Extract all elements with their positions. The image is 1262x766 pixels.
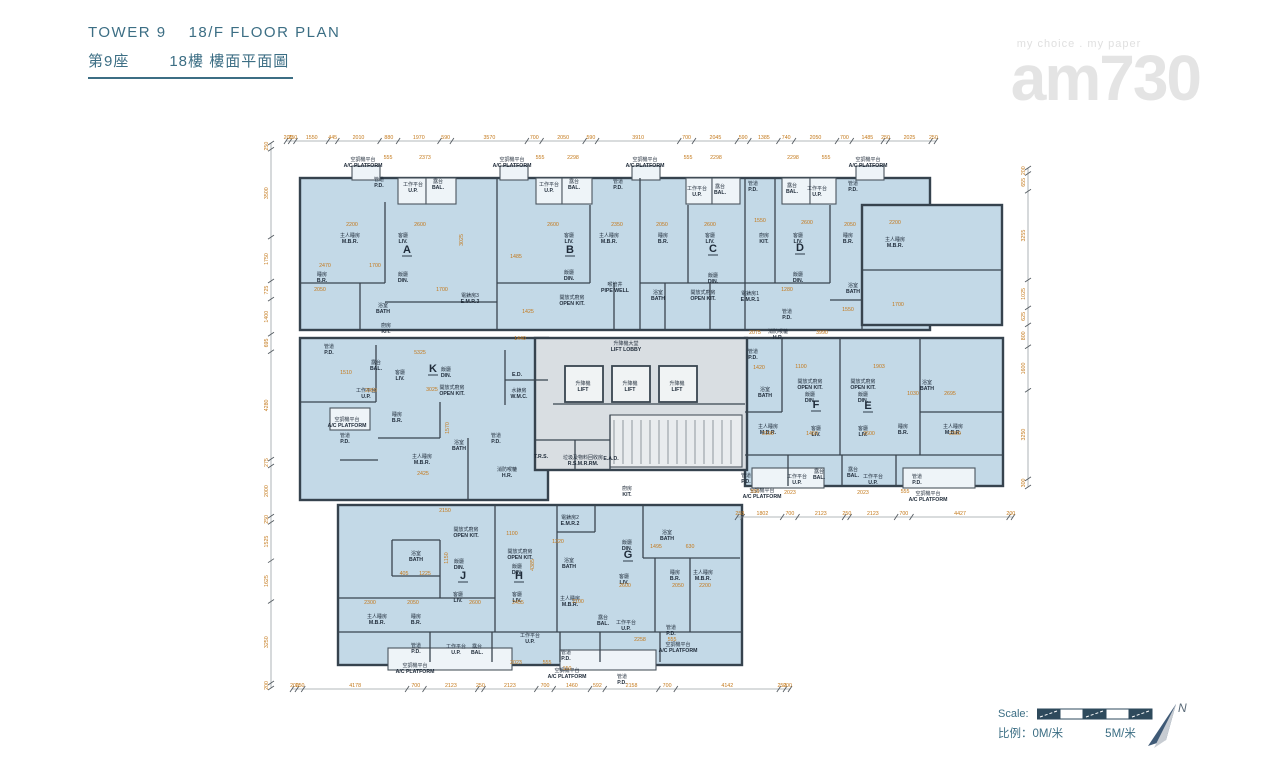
svg-text:2470: 2470 (319, 263, 331, 269)
svg-text:250: 250 (842, 511, 851, 517)
svg-text:U.P.: U.P. (361, 394, 371, 400)
svg-text:消防喉轆: 消防喉轆 (497, 466, 517, 473)
svg-text:露台: 露台 (569, 178, 579, 185)
svg-text:2050: 2050 (407, 600, 419, 606)
svg-text:DIN.: DIN. (708, 279, 719, 285)
svg-text:升降機大堂: 升降機大堂 (613, 340, 638, 347)
svg-text:浴室: 浴室 (848, 282, 858, 289)
svg-text:2075: 2075 (749, 330, 761, 336)
svg-text:T.R.S.: T.R.S. (534, 454, 549, 460)
svg-text:A/C PLATFORM: A/C PLATFORM (626, 163, 665, 169)
svg-text:1550: 1550 (754, 218, 766, 224)
svg-text:250: 250 (288, 135, 297, 141)
svg-text:主人睡房: 主人睡房 (943, 423, 963, 430)
svg-text:喉管井: 喉管井 (607, 281, 622, 288)
svg-text:4178: 4178 (349, 683, 361, 689)
svg-text:管道: 管道 (374, 176, 384, 183)
svg-text:空調機平台: 空調機平台 (334, 416, 359, 423)
svg-text:2373: 2373 (419, 155, 431, 161)
svg-text:客廳: 客廳 (705, 232, 715, 239)
svg-text:工作平台: 工作平台 (863, 473, 883, 480)
svg-text:BATH: BATH (660, 536, 674, 542)
svg-text:客廳: 客廳 (564, 232, 574, 239)
svg-text:浴室: 浴室 (564, 557, 574, 564)
svg-text:飯廳: 飯廳 (622, 539, 632, 546)
svg-text:800: 800 (1021, 331, 1027, 340)
svg-text:740: 740 (782, 135, 791, 141)
svg-text:BATH: BATH (846, 289, 860, 295)
svg-text:KIT.: KIT. (759, 239, 769, 245)
svg-text:4427: 4427 (954, 511, 966, 517)
svg-text:2298: 2298 (567, 155, 579, 161)
svg-text:4385: 4385 (530, 559, 536, 571)
svg-text:2150: 2150 (439, 508, 451, 514)
svg-text:1440: 1440 (514, 336, 526, 342)
svg-text:2350: 2350 (611, 222, 623, 228)
svg-text:555: 555 (684, 155, 693, 161)
svg-text:客廳: 客廳 (398, 232, 408, 239)
svg-text:1420: 1420 (753, 365, 765, 371)
svg-text:150: 150 (563, 666, 572, 672)
svg-text:浴室: 浴室 (922, 379, 932, 386)
svg-text:浴室: 浴室 (378, 302, 388, 309)
svg-text:1700: 1700 (369, 263, 381, 269)
svg-text:1030: 1030 (907, 391, 919, 397)
svg-text:2100: 2100 (762, 431, 774, 437)
svg-text:管道: 管道 (411, 642, 421, 649)
svg-text:3990: 3990 (816, 330, 828, 336)
svg-text:590: 590 (586, 135, 595, 141)
svg-text:廚房: 廚房 (622, 485, 632, 492)
svg-text:2455: 2455 (512, 600, 524, 606)
svg-text:OPEN KIT.: OPEN KIT. (690, 296, 716, 302)
svg-text:2050: 2050 (314, 287, 326, 293)
svg-text:主人睡房: 主人睡房 (885, 236, 905, 243)
svg-text:2695: 2695 (944, 391, 956, 397)
svg-text:客廳: 客廳 (793, 232, 803, 239)
svg-text:LIV.: LIV. (453, 598, 463, 604)
svg-text:1970: 1970 (413, 135, 425, 141)
svg-text:2158: 2158 (626, 683, 638, 689)
svg-text:592: 592 (593, 683, 602, 689)
svg-text:工作平台: 工作平台 (539, 181, 559, 188)
svg-text:2600: 2600 (619, 583, 631, 589)
svg-text:W.M.C.: W.M.C. (510, 394, 528, 400)
svg-text:飯廳: 飯廳 (708, 272, 718, 279)
svg-text:A/C PLATFORM: A/C PLATFORM (328, 423, 367, 429)
svg-text:3025: 3025 (459, 234, 465, 246)
svg-text:主人睡房: 主人睡房 (599, 232, 619, 239)
svg-text:275: 275 (264, 458, 270, 467)
svg-text:A/C PLATFORM: A/C PLATFORM (909, 497, 948, 503)
svg-text:258: 258 (735, 511, 744, 517)
svg-text:F: F (813, 399, 820, 411)
svg-text:LIV.: LIV. (395, 376, 405, 382)
svg-text:2045: 2045 (710, 135, 722, 141)
svg-text:P.D.: P.D. (374, 183, 384, 189)
svg-text:A/C PLATFORM: A/C PLATFORM (344, 163, 383, 169)
svg-text:2200: 2200 (699, 583, 711, 589)
svg-text:200: 200 (1006, 511, 1015, 517)
svg-text:1700: 1700 (892, 302, 904, 308)
svg-text:工作平台: 工作平台 (520, 632, 540, 639)
svg-text:4280: 4280 (264, 399, 270, 411)
svg-text:700: 700 (785, 511, 794, 517)
svg-text:1802: 1802 (757, 511, 769, 517)
svg-text:2050: 2050 (672, 583, 684, 589)
svg-text:2600: 2600 (863, 431, 875, 437)
svg-text:飯廳: 飯廳 (454, 558, 464, 565)
svg-text:2000: 2000 (264, 485, 270, 497)
svg-text:露台: 露台 (715, 183, 725, 190)
svg-text:LIFT: LIFT (578, 387, 590, 393)
svg-text:1550: 1550 (842, 307, 854, 313)
svg-text:U.P.: U.P. (525, 639, 535, 645)
svg-text:2200: 2200 (346, 222, 358, 228)
svg-text:PIPE WELL: PIPE WELL (601, 288, 630, 294)
svg-text:200: 200 (783, 683, 792, 689)
svg-text:1570: 1570 (445, 422, 451, 434)
svg-text:浴室: 浴室 (454, 439, 464, 446)
north-arrow: N (1140, 696, 1190, 752)
svg-text:水錶房: 水錶房 (511, 387, 526, 394)
svg-text:555: 555 (901, 489, 910, 495)
svg-text:2050: 2050 (810, 135, 822, 141)
svg-text:2300: 2300 (364, 600, 376, 606)
svg-text:250: 250 (264, 515, 270, 524)
svg-text:625: 625 (1021, 312, 1027, 321)
svg-text:M.B.R.: M.B.R. (342, 239, 359, 245)
svg-text:露台: 露台 (598, 614, 608, 621)
svg-text:N: N (1178, 701, 1187, 715)
svg-text:4142: 4142 (721, 683, 733, 689)
svg-text:1903: 1903 (873, 364, 885, 370)
svg-text:1150: 1150 (444, 552, 450, 563)
svg-text:開放式廚房: 開放式廚房 (453, 526, 478, 533)
svg-text:BATH: BATH (758, 393, 772, 399)
svg-text:2100: 2100 (572, 599, 584, 605)
svg-text:K: K (429, 363, 437, 375)
svg-text:3250: 3250 (264, 636, 270, 648)
svg-text:2023: 2023 (857, 490, 869, 496)
svg-text:BAL.: BAL. (714, 190, 727, 196)
svg-text:飯廳: 飯廳 (441, 366, 451, 373)
svg-text:2123: 2123 (504, 683, 516, 689)
svg-text:U.P.: U.P. (868, 480, 878, 486)
svg-text:空調機平台: 空調機平台 (350, 156, 375, 163)
svg-text:A/C PLATFORM: A/C PLATFORM (743, 494, 782, 500)
svg-text:2025: 2025 (904, 135, 916, 141)
svg-text:M.B.R.: M.B.R. (369, 620, 386, 626)
svg-text:P.D.: P.D. (748, 187, 758, 193)
svg-text:客廳: 客廳 (619, 573, 629, 580)
svg-text:P.D.: P.D. (324, 350, 334, 356)
svg-text:飯廳: 飯廳 (793, 271, 803, 278)
svg-text:2050: 2050 (656, 222, 668, 228)
svg-text:555: 555 (668, 637, 677, 643)
svg-text:主人睡房: 主人睡房 (340, 232, 360, 239)
svg-text:睡房: 睡房 (317, 271, 327, 278)
svg-text:2050: 2050 (365, 388, 377, 394)
svg-text:空調機平台: 空調機平台 (402, 662, 427, 669)
scale-label-en: Scale: (998, 708, 1029, 720)
svg-text:200: 200 (264, 681, 270, 690)
svg-text:655: 655 (1021, 178, 1027, 187)
svg-text:555: 555 (751, 489, 760, 495)
svg-text:管道: 管道 (324, 343, 334, 350)
svg-text:405: 405 (400, 571, 409, 577)
svg-text:飯廳: 飯廳 (564, 269, 574, 276)
svg-text:555: 555 (822, 155, 831, 161)
svg-text:主人睡房: 主人睡房 (412, 453, 432, 460)
svg-text:LIFT LOBBY: LIFT LOBBY (611, 347, 642, 353)
svg-text:H.R.: H.R. (502, 473, 513, 479)
svg-text:2600: 2600 (469, 600, 481, 606)
svg-text:P.D.: P.D. (912, 480, 922, 486)
svg-text:BATH: BATH (409, 557, 423, 563)
svg-text:P.D.: P.D. (782, 315, 792, 321)
svg-text:空調機平台: 空調機平台 (855, 156, 880, 163)
svg-text:睡房: 睡房 (670, 569, 680, 576)
svg-text:3500: 3500 (264, 187, 270, 199)
svg-text:工作平台: 工作平台 (403, 181, 423, 188)
svg-text:1320: 1320 (552, 539, 564, 545)
svg-text:U.P.: U.P. (451, 650, 461, 656)
svg-text:開放式廚房: 開放式廚房 (559, 294, 584, 301)
svg-text:管道: 管道 (561, 649, 571, 656)
svg-text:客廳: 客廳 (395, 369, 405, 376)
svg-text:工作平台: 工作平台 (446, 643, 466, 650)
svg-text:主人睡房: 主人睡房 (367, 613, 387, 620)
svg-text:555: 555 (384, 155, 393, 161)
svg-text:B: B (566, 244, 574, 256)
svg-text:浴室: 浴室 (760, 386, 770, 393)
svg-text:露台: 露台 (814, 468, 824, 475)
svg-text:H: H (515, 570, 523, 582)
svg-text:浴室: 浴室 (662, 529, 672, 536)
svg-text:OPEN KIT.: OPEN KIT. (453, 533, 479, 539)
svg-text:300: 300 (1021, 478, 1027, 487)
svg-text:工作平台: 工作平台 (687, 185, 707, 192)
svg-text:BATH: BATH (376, 309, 390, 315)
svg-text:管道: 管道 (613, 178, 623, 185)
svg-text:3910: 3910 (632, 135, 644, 141)
svg-text:BAL.: BAL. (471, 650, 484, 656)
svg-text:P.D.: P.D. (561, 656, 571, 662)
svg-text:A/C PLATFORM: A/C PLATFORM (849, 163, 888, 169)
svg-text:2425: 2425 (417, 471, 429, 477)
svg-text:BATH: BATH (920, 386, 934, 392)
svg-text:管道: 管道 (741, 472, 751, 479)
svg-text:725: 725 (264, 286, 270, 295)
svg-text:BAL.: BAL. (568, 185, 581, 191)
svg-text:250: 250 (929, 135, 938, 141)
svg-text:2123: 2123 (867, 511, 879, 517)
svg-text:睡房: 睡房 (411, 613, 421, 620)
svg-text:BAL.: BAL. (786, 189, 799, 195)
svg-text:開放式廚房: 開放式廚房 (690, 289, 715, 296)
svg-text:E.A.D.: E.A.D. (603, 456, 619, 462)
svg-text:電錶房2: 電錶房2 (561, 514, 579, 521)
svg-text:1550: 1550 (306, 135, 318, 141)
svg-text:廚房: 廚房 (759, 232, 769, 239)
svg-text:1700: 1700 (436, 287, 448, 293)
svg-text:OPEN KIT.: OPEN KIT. (797, 385, 823, 391)
svg-text:1100: 1100 (506, 531, 517, 537)
svg-text:主人睡房: 主人睡房 (693, 569, 713, 576)
svg-text:700: 700 (530, 135, 539, 141)
svg-text:E.M.R.2: E.M.R.2 (561, 521, 580, 527)
svg-text:露台: 露台 (371, 359, 381, 366)
svg-text:升降機: 升降機 (669, 380, 684, 387)
svg-text:1100: 1100 (795, 364, 806, 370)
svg-text:630: 630 (686, 544, 695, 550)
svg-text:2010: 2010 (353, 135, 365, 141)
svg-text:BAL.: BAL. (813, 475, 826, 481)
svg-text:M.B.R.: M.B.R. (887, 243, 904, 249)
svg-text:U.P.: U.P. (408, 188, 418, 194)
svg-text:垃圾及物料回收房: 垃圾及物料回收房 (563, 454, 603, 461)
svg-text:P.D.: P.D. (411, 649, 421, 655)
svg-text:管道: 管道 (782, 308, 792, 315)
svg-text:250: 250 (476, 683, 485, 689)
svg-text:695: 695 (264, 339, 270, 348)
svg-text:露台: 露台 (472, 643, 482, 650)
svg-text:3250: 3250 (1021, 429, 1027, 441)
floor-plan-page: TOWER 918/F FLOOR PLAN 第9座18樓 樓面平面圖 my c… (0, 0, 1262, 766)
svg-text:B.R.: B.R. (392, 418, 403, 424)
svg-text:P.D.: P.D. (491, 439, 501, 445)
svg-text:開放式廚房: 開放式廚房 (507, 548, 532, 555)
scale-start: 比例：0M/米 (998, 725, 1063, 741)
svg-text:2050: 2050 (557, 135, 569, 141)
svg-text:露台: 露台 (848, 466, 858, 473)
svg-text:3255: 3255 (1021, 230, 1027, 242)
svg-text:700: 700 (682, 135, 691, 141)
svg-text:空調機平台: 空調機平台 (499, 156, 524, 163)
svg-text:飯廳: 飯廳 (398, 271, 408, 278)
svg-text:管道: 管道 (617, 673, 627, 680)
scale-bar: Scale: 比例：0M/米 5M/米 (998, 708, 1155, 741)
svg-text:管道: 管道 (491, 432, 501, 439)
svg-text:飯廳: 飯廳 (805, 391, 815, 398)
svg-text:1460: 1460 (566, 683, 578, 689)
svg-text:消防喉轆: 消防喉轆 (768, 328, 788, 335)
svg-text:1225: 1225 (419, 571, 431, 577)
svg-text:2298: 2298 (710, 155, 722, 161)
svg-text:B.R.: B.R. (317, 278, 328, 284)
svg-text:睡房: 睡房 (843, 232, 853, 239)
svg-text:KIT.: KIT. (381, 329, 391, 335)
svg-text:H.R.: H.R. (773, 335, 784, 341)
svg-text:睡房: 睡房 (392, 411, 402, 418)
svg-text:2023: 2023 (510, 660, 522, 666)
svg-text:P.D.: P.D. (848, 187, 858, 193)
svg-text:1495: 1495 (650, 544, 662, 550)
svg-text:露台: 露台 (433, 178, 443, 185)
svg-text:開放式廚房: 開放式廚房 (439, 384, 464, 391)
svg-text:1385: 1385 (758, 135, 770, 141)
svg-text:700: 700 (541, 683, 550, 689)
svg-text:U.P.: U.P. (692, 192, 702, 198)
svg-text:A/C PLATFORM: A/C PLATFORM (659, 648, 698, 654)
svg-text:B.R.: B.R. (843, 239, 854, 245)
svg-text:空調機平台: 空調機平台 (915, 490, 940, 497)
svg-text:700: 700 (663, 683, 672, 689)
svg-text:A/C PLATFORM: A/C PLATFORM (396, 669, 435, 675)
svg-text:LIFT: LIFT (625, 387, 637, 393)
svg-text:E.M.R.1: E.M.R.1 (741, 297, 760, 303)
svg-text:電錶房1: 電錶房1 (741, 290, 759, 297)
svg-text:5325: 5325 (414, 350, 426, 356)
svg-text:管道: 管道 (848, 180, 858, 187)
svg-text:浴室: 浴室 (411, 550, 421, 557)
svg-text:3570: 3570 (483, 135, 495, 141)
svg-text:1485: 1485 (510, 254, 522, 260)
svg-text:U.P.: U.P. (544, 188, 554, 194)
svg-text:590: 590 (441, 135, 450, 141)
svg-text:P.D.: P.D. (617, 680, 627, 686)
svg-text:2300: 2300 (949, 431, 961, 437)
svg-text:E: E (864, 400, 871, 412)
svg-text:露台: 露台 (787, 182, 797, 189)
svg-text:工作平台: 工作平台 (787, 473, 807, 480)
svg-text:OPEN KIT.: OPEN KIT. (850, 385, 876, 391)
svg-text:管道: 管道 (748, 348, 758, 355)
svg-text:250: 250 (264, 142, 270, 151)
svg-text:2298: 2298 (787, 155, 799, 161)
svg-text:555: 555 (536, 155, 545, 161)
svg-text:BAL.: BAL. (432, 185, 445, 191)
svg-text:BATH: BATH (651, 296, 665, 302)
svg-text:1625: 1625 (264, 575, 270, 587)
svg-text:管道: 管道 (912, 473, 922, 480)
svg-text:M.B.R.: M.B.R. (695, 576, 712, 582)
svg-text:B.R.: B.R. (658, 239, 669, 245)
svg-text:客廳: 客廳 (453, 591, 463, 598)
svg-text:2123: 2123 (445, 683, 457, 689)
svg-text:P.D.: P.D. (340, 439, 350, 445)
svg-text:2258: 2258 (634, 637, 646, 643)
svg-text:主人睡房: 主人睡房 (758, 423, 778, 430)
svg-text:250: 250 (296, 683, 305, 689)
svg-text:700: 700 (840, 135, 849, 141)
svg-text:DIN.: DIN. (564, 276, 575, 282)
svg-text:BATH: BATH (452, 446, 466, 452)
svg-text:浴室: 浴室 (653, 289, 663, 296)
svg-text:2023: 2023 (784, 490, 796, 496)
svg-text:BAL.: BAL. (847, 473, 860, 479)
svg-text:工作平台: 工作平台 (807, 185, 827, 192)
svg-text:J: J (460, 570, 466, 582)
svg-text:1450: 1450 (806, 431, 818, 437)
svg-text:700: 700 (899, 511, 908, 517)
svg-text:工作平台: 工作平台 (616, 619, 636, 626)
svg-text:700: 700 (411, 683, 420, 689)
svg-text:555: 555 (543, 660, 552, 666)
svg-text:200: 200 (1021, 166, 1027, 175)
svg-text:開放式廚房: 開放式廚房 (797, 378, 822, 385)
svg-text:2123: 2123 (815, 511, 827, 517)
svg-text:D: D (796, 242, 804, 254)
svg-text:BAL.: BAL. (370, 366, 383, 372)
svg-text:管道: 管道 (666, 624, 676, 631)
svg-text:A/C PLATFORM: A/C PLATFORM (493, 163, 532, 169)
scale-end: 5M/米 (1105, 725, 1136, 741)
floor-plan-svg: 2002501550445201088019705903570700205059… (0, 0, 1262, 766)
svg-text:B.R.: B.R. (898, 430, 909, 436)
svg-text:2600: 2600 (547, 222, 559, 228)
